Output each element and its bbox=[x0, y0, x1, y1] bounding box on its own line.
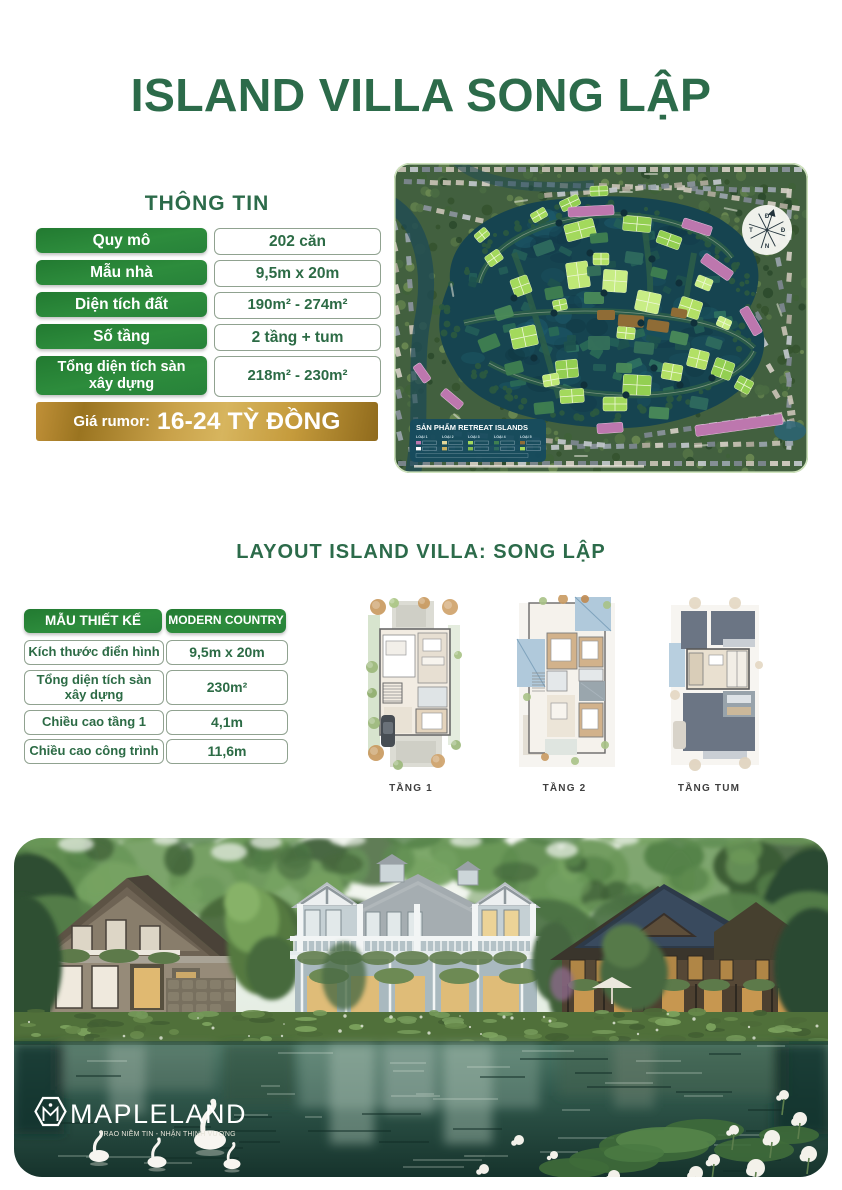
svg-text:LOẠI 3: LOẠI 3 bbox=[468, 435, 480, 439]
svg-text:LOẠI 1: LOẠI 1 bbox=[416, 435, 428, 439]
svg-text:N: N bbox=[765, 244, 769, 250]
svg-text:Đ: Đ bbox=[765, 214, 770, 220]
svg-text:LOẠI 4: LOẠI 4 bbox=[494, 435, 506, 439]
svg-text:LOẠI 2: LOẠI 2 bbox=[442, 435, 454, 439]
svg-text:Đ: Đ bbox=[781, 228, 786, 234]
svg-text:T: T bbox=[749, 228, 753, 234]
svg-text:MAPLELAND: MAPLELAND bbox=[70, 1099, 247, 1129]
svg-text:LOẠI 5: LOẠI 5 bbox=[520, 435, 532, 439]
svg-text:SẢN PHẨM RETREAT ISLANDS: SẢN PHẨM RETREAT ISLANDS bbox=[416, 423, 528, 432]
